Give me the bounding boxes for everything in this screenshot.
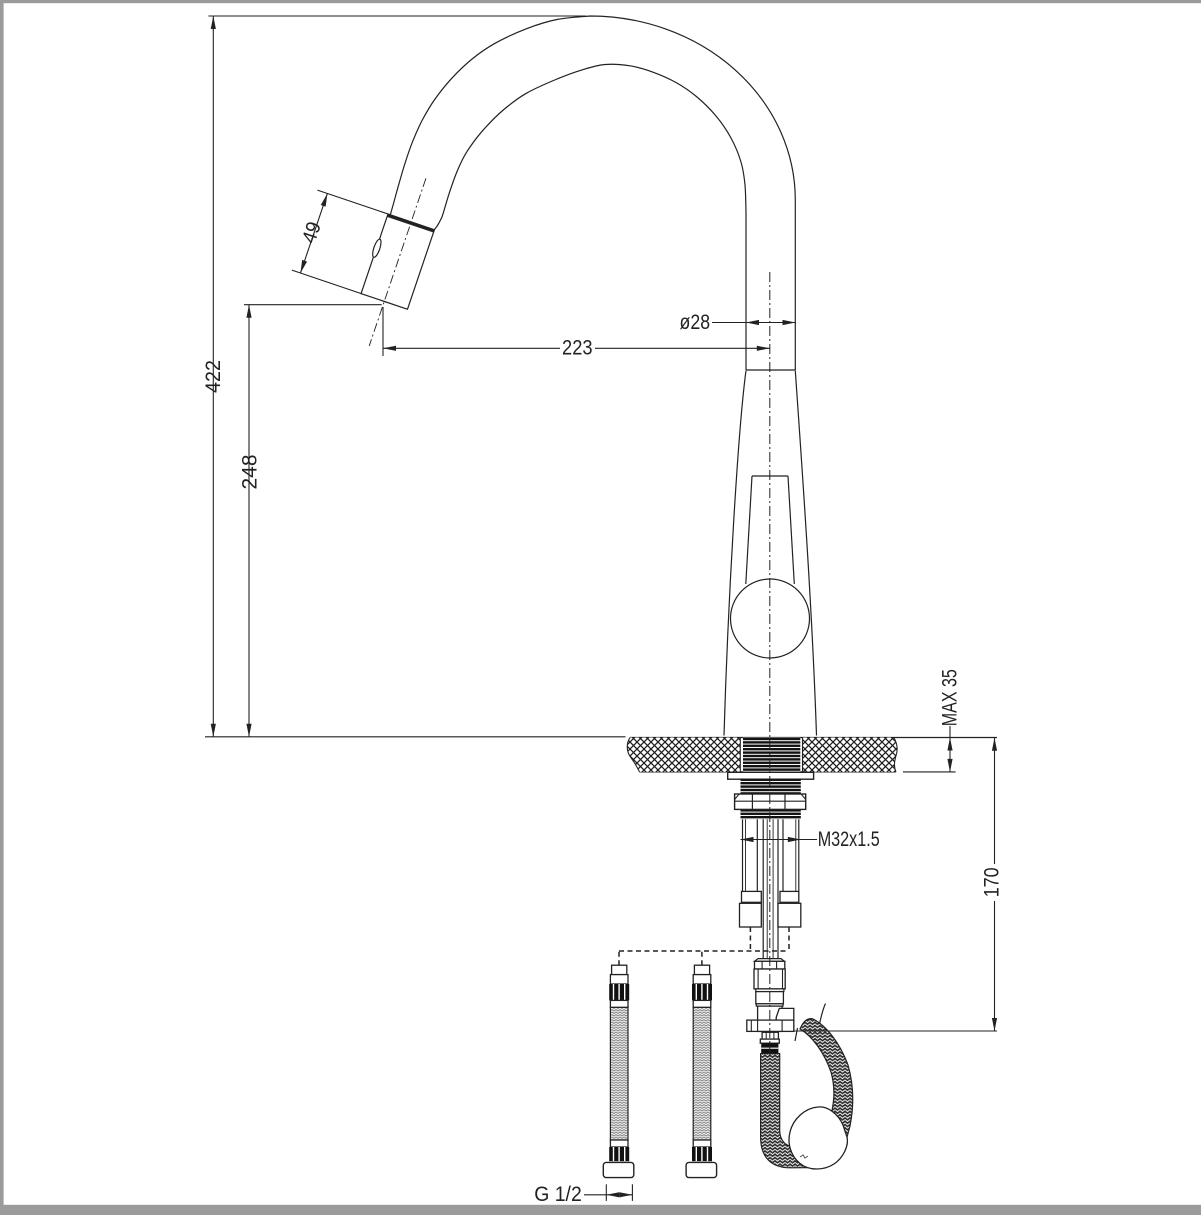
- svg-text:MAX 35: MAX 35: [938, 669, 961, 726]
- svg-text:223: 223: [562, 337, 593, 360]
- svg-text:ø28: ø28: [680, 311, 711, 334]
- svg-text:G 1/2: G 1/2: [534, 1183, 582, 1206]
- svg-text:422: 422: [202, 360, 225, 393]
- svg-text:248: 248: [239, 455, 262, 490]
- svg-text:170: 170: [981, 867, 1004, 897]
- svg-text:M32x1.5: M32x1.5: [818, 828, 880, 851]
